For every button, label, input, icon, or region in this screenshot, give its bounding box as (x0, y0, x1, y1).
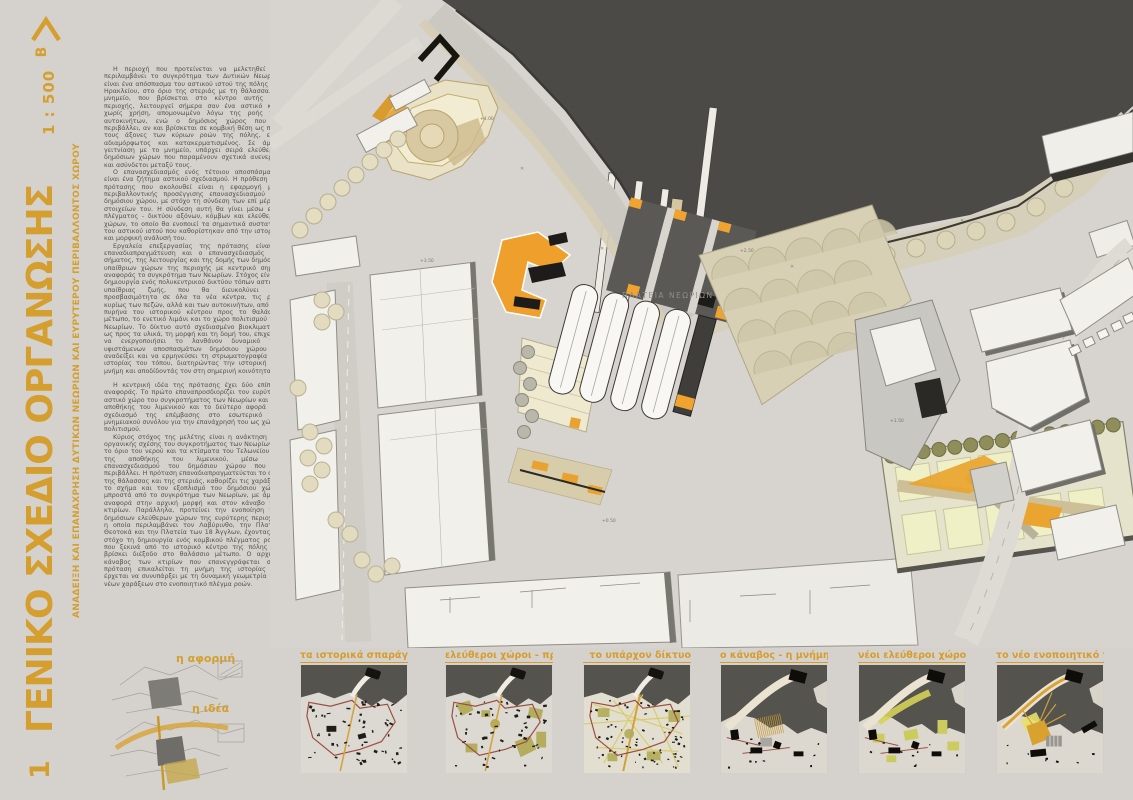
thumbnail-map-existing-network (583, 665, 691, 773)
svg-text:+3.50: +3.50 (420, 258, 434, 264)
thumbnail-historic-fragments: τα ιστορικά σπαράγματα (300, 650, 408, 773)
north-label: B (34, 47, 50, 58)
thumbnail-new-open-spaces-green: νέοι ελεύθεροι χώροι-πράσινο (858, 650, 966, 773)
svg-text:✕: ✕ (520, 166, 524, 172)
paragraph: Εργαλεία επεξεργασίας της πρότασης είναι… (104, 243, 282, 375)
svg-text:✕: ✕ (960, 218, 964, 224)
north-arrow-icon: B (26, 10, 66, 60)
thumbnail-label: το υπάρχον δίκτυο (583, 650, 691, 663)
svg-text:+4.00: +4.00 (480, 116, 494, 122)
svg-text:+0.50: +0.50 (602, 518, 616, 524)
paragraph: Η κεντρική ιδέα της πρότασης έχει δύο επ… (104, 382, 282, 434)
thumbnail-map-new-open-spaces (858, 665, 966, 773)
thumbnail-open-spaces-green: ελεύθεροι χώροι - πράσινο (445, 650, 553, 773)
page-subtitle: ΑΝΑΔΕΙΞΗ ΚΑΙ ΕΠΑΝΑΧΡΗΣΗ ΔΥΤΙΚΩΝ ΝΕΩΡΙΩΝ … (72, 162, 86, 618)
site-plan: ΠΛΑΤΕΙΑ ΝΕΩΡΙΩΝ +4.00 +3.50 +2.50 +1.50 … (270, 0, 1133, 648)
presentation-board: { "panel": { "number": "54022", "index":… (0, 0, 1133, 800)
page-title: ΓΕΝΙΚΟ ΣΧΕΔΙΟ ΟΡΓΑΝΩΣΗΣ (20, 158, 68, 733)
thumbnail-label: το νέο ενοποιητικό πλέγμα (996, 650, 1104, 663)
svg-text:✕: ✕ (600, 246, 604, 252)
svg-text:✕: ✕ (790, 264, 794, 270)
thumbnail-map-historic-fragments (300, 665, 408, 773)
thumbnail-label: ο κάναβος - η μνήμη (720, 650, 828, 663)
thumbnail-unifying-grid: το νέο ενοποιητικό πλέγμα (996, 650, 1104, 773)
north-arrow-chevron (33, 20, 59, 40)
paragraph: Κύριος στόχος της μελέτης είναι η ανάκτη… (104, 434, 282, 589)
description-text: Η περιοχή που προτείνεται να μελετηθεί κ… (104, 66, 282, 588)
thumbnail-map-grid-memory (720, 665, 828, 773)
thumbnail-map-unifying-grid (996, 665, 1104, 773)
svg-text:+1.50: +1.50 (890, 418, 904, 424)
panel-index: 1 (25, 735, 55, 779)
thumbnail-label: ελεύθεροι χώροι - πράσινο (445, 650, 553, 663)
thumbnail-grid-memory: ο κάναβος - η μνήμη (720, 650, 828, 773)
sketch-idea (98, 706, 263, 796)
plan-square-label: ΠΛΑΤΕΙΑ ΝΕΩΡΙΩΝ (622, 291, 714, 300)
svg-text:+2.50: +2.50 (740, 248, 754, 254)
paragraph: Ο επανασχεδιασμός ενός τέτοιου αποσπάσμα… (104, 169, 282, 243)
scale-label: 1 : 500 (40, 65, 60, 135)
thumbnail-existing-network: το υπάρχον δίκτυο (583, 650, 691, 773)
thumbnail-map-open-spaces (445, 665, 553, 773)
thumbnail-label: νέοι ελεύθεροι χώροι-πράσινο (858, 650, 966, 663)
thumbnail-label: τα ιστορικά σπαράγματα (300, 650, 408, 663)
paragraph: Η περιοχή που προτείνεται να μελετηθεί κ… (104, 66, 282, 169)
